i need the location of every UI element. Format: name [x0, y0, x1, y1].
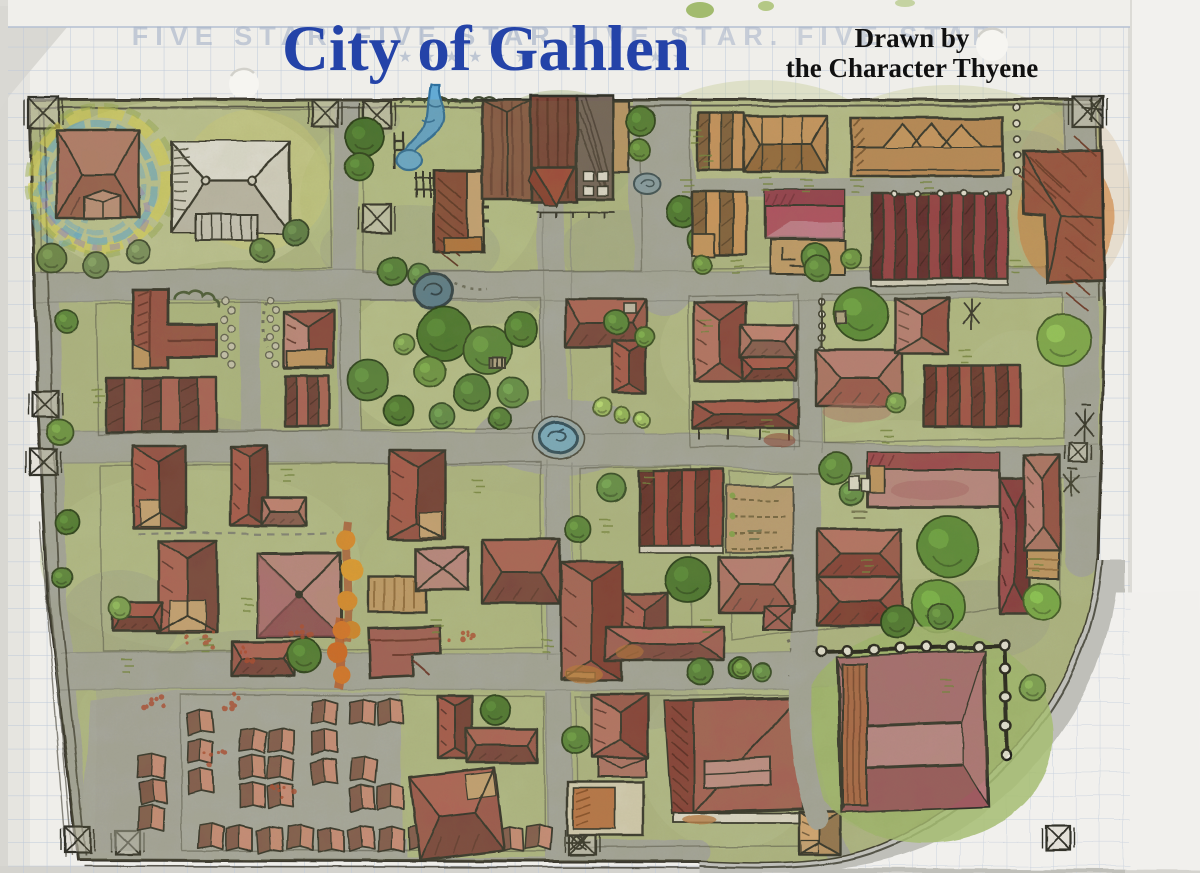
svg-text:City of Gahlen: City of Gahlen: [282, 13, 690, 85]
svg-text:the Character Thyene: the Character Thyene: [786, 53, 1038, 83]
svg-text:Drawn by: Drawn by: [855, 23, 970, 53]
